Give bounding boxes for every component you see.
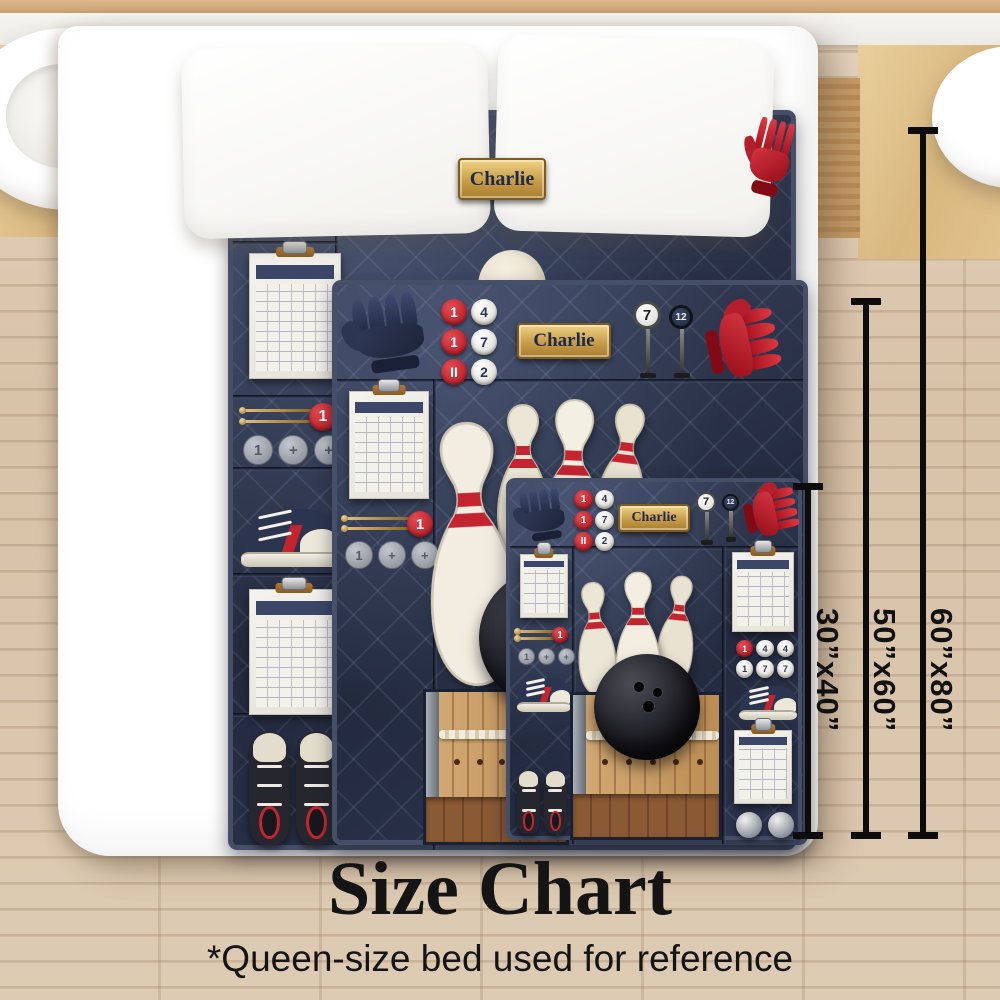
- pin-button: 4: [471, 299, 497, 325]
- knitting-needles: 1: [516, 626, 568, 644]
- size-arrow-60x80: [908, 127, 938, 839]
- quilt-seam: [233, 467, 337, 471]
- red-bowling-glove: [700, 300, 785, 393]
- floor-gap-right: [812, 78, 860, 238]
- pin-count-buttons: 1 4 1 7 II 2: [441, 299, 497, 381]
- navy-glove: [515, 487, 573, 544]
- pin-button: 7: [595, 511, 614, 530]
- red-number-tag: 1: [552, 627, 568, 643]
- arrow-line: [863, 304, 869, 833]
- knitting-needles: 1: [241, 403, 337, 431]
- pin-sign-12: 12: [669, 305, 695, 383]
- scoresheet-clipboard: [249, 253, 341, 379]
- size-chart-title: Size Chart: [0, 846, 1000, 933]
- size-chart-scene: 1 1 + + Charlie: [0, 0, 1000, 1000]
- clipboard-clasp-icon: [537, 542, 551, 555]
- size-label-30x40: 30”x40”: [809, 608, 845, 728]
- pin-button: 1: [441, 329, 467, 355]
- pin-button: II: [574, 532, 593, 551]
- bocce-balls: [736, 812, 796, 838]
- personalized-name: Charlie: [533, 330, 594, 352]
- coin: +: [558, 648, 575, 665]
- pin-button: 2: [471, 359, 497, 385]
- bowling-shoe-side: [243, 503, 337, 567]
- navy-glove: [344, 290, 438, 377]
- pin-button: 1: [574, 490, 593, 509]
- silver-ball: [736, 812, 762, 838]
- clipboard-clasp-icon: [282, 577, 307, 590]
- scoresheet-clipboard: [520, 554, 568, 618]
- sneakers-top-view-pair: [249, 731, 337, 845]
- coin-row: 1 + +: [518, 648, 566, 665]
- coin-row: 1 + +: [345, 541, 427, 569]
- quilt-nameplate: Charlie: [618, 504, 690, 532]
- clipboard-clasp-icon: [755, 718, 772, 731]
- personalized-name: Charlie: [631, 510, 676, 526]
- pin-count-buttons: 1 4 1 7 II 2: [574, 490, 614, 548]
- bowling-ball: [594, 654, 700, 760]
- arrow-bottom-cap: [851, 832, 881, 839]
- score-button: 1: [736, 660, 753, 677]
- coin-row: 1 + +: [243, 435, 333, 465]
- scoresheet-clipboard: [734, 730, 792, 804]
- quilt-nameplate: Charlie: [458, 158, 546, 200]
- coin: 1: [243, 435, 273, 465]
- score-button: 4: [777, 640, 794, 657]
- coin: 1: [518, 648, 535, 665]
- size-label-60x80: 60”x80”: [923, 608, 959, 728]
- pin-button: 4: [595, 490, 614, 509]
- pin-button: 2: [595, 532, 614, 551]
- clipboard-clasp-icon: [282, 241, 307, 254]
- clipboard-clasp-icon: [378, 379, 400, 392]
- pin-sign-7: 7: [696, 492, 718, 546]
- size-arrow-50x60: [851, 298, 881, 839]
- quilt-nameplate: Charlie: [517, 323, 611, 359]
- pin-button: II: [441, 359, 467, 385]
- quilt-small-30x40: 1 4 1 7 II 2 Charlie 7 12 1: [506, 478, 802, 840]
- size-label-50x60: 50”x60”: [866, 608, 902, 728]
- score-button: 1: [736, 640, 753, 657]
- coin: +: [378, 541, 406, 569]
- score-button: 7: [756, 660, 773, 677]
- arrow-bottom-cap: [908, 832, 938, 839]
- coin: 1: [345, 541, 373, 569]
- clipboard-clasp-icon: [754, 540, 772, 553]
- quilt-seam: [233, 395, 337, 399]
- score-button: 4: [756, 640, 773, 657]
- reference-footnote: *Queen-size bed used for reference: [0, 938, 1000, 980]
- pin-sign-12: 12: [722, 494, 740, 544]
- coin: +: [278, 435, 308, 465]
- scoresheet-clipboard: [249, 589, 339, 715]
- pin-sign-7: 7: [633, 301, 663, 383]
- coin: +: [538, 648, 555, 665]
- pin-button: 1: [441, 299, 467, 325]
- score-buttons: 1 4 4 1 7 7: [736, 640, 794, 676]
- pillow-left: [181, 43, 491, 239]
- headboard-top-shelf: [0, 0, 1000, 13]
- pin-button: 7: [471, 329, 497, 355]
- bowling-shoe-side: [740, 682, 796, 720]
- pillow-right: [493, 34, 774, 238]
- score-button: 7: [777, 660, 794, 677]
- arrow-bottom-cap: [793, 832, 823, 839]
- silver-ball: [768, 812, 794, 838]
- quilt-seam: [722, 546, 726, 844]
- sneakers-top-view-pair: [517, 770, 567, 834]
- bowling-shoe-side: [518, 674, 570, 712]
- personalized-name: Charlie: [470, 168, 534, 191]
- scoresheet-clipboard: [732, 552, 794, 632]
- pin-button: 1: [574, 511, 593, 530]
